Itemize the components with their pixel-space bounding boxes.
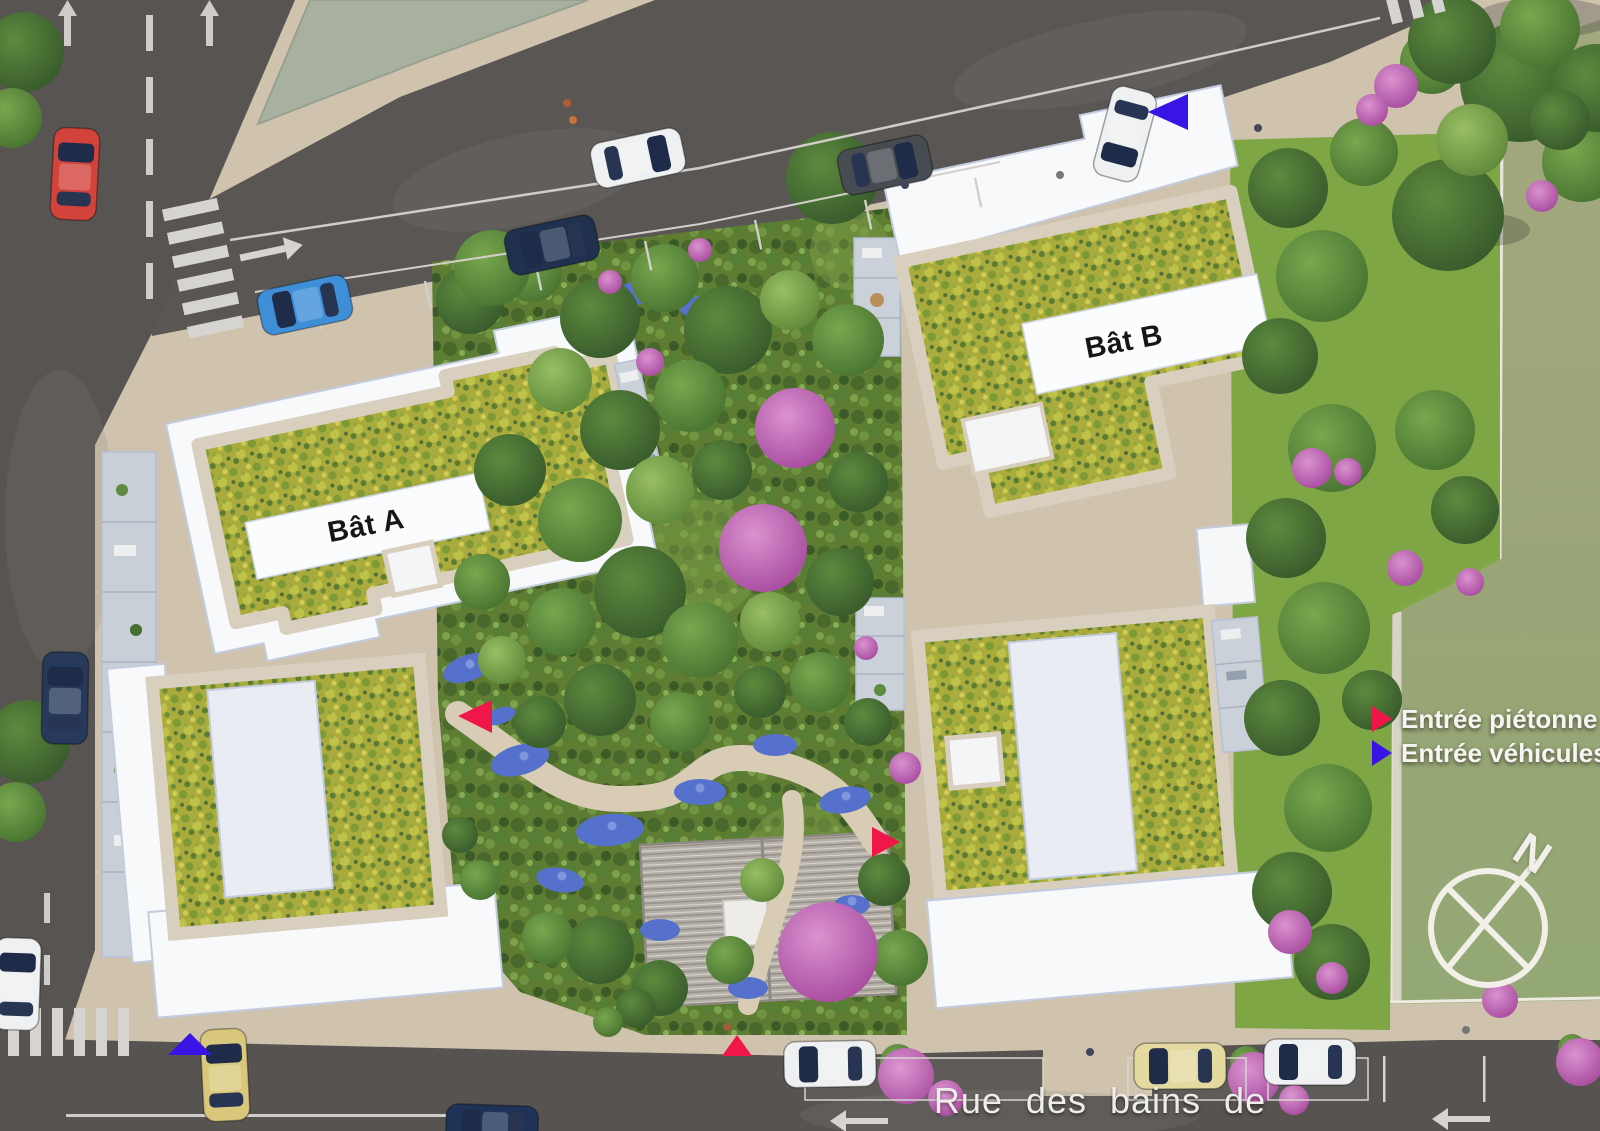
street-name-label: Rue des bains de mer bbox=[930, 1080, 1270, 1131]
legend-item-pedestrian: Entrée piétonne bbox=[1372, 702, 1600, 736]
car bbox=[41, 652, 89, 745]
car bbox=[445, 1103, 539, 1131]
building-b-skylight bbox=[1009, 633, 1137, 880]
car bbox=[0, 937, 42, 1031]
building-a-skylight bbox=[207, 681, 333, 898]
map-render bbox=[0, 0, 1600, 1131]
legend: Entrée piétonne Entrée véhicules bbox=[1372, 702, 1600, 770]
legend-item-vehicle: Entrée véhicules bbox=[1372, 736, 1600, 770]
building-a-roof-vent bbox=[384, 542, 440, 595]
legend-label: Entrée piétonne bbox=[1401, 706, 1597, 732]
pedestrian-entrance-icon bbox=[1372, 706, 1392, 732]
building-b-roof-vent bbox=[947, 734, 1003, 788]
legend-label: Entrée véhicules bbox=[1401, 740, 1600, 766]
vehicle-entrance-icon bbox=[1372, 740, 1392, 766]
car bbox=[200, 1028, 251, 1122]
car bbox=[784, 1040, 877, 1088]
car bbox=[50, 127, 101, 221]
site-plan: Bât A Bât B Entrée piétonne Entrée véhic… bbox=[0, 0, 1600, 1131]
car bbox=[1264, 1039, 1356, 1085]
